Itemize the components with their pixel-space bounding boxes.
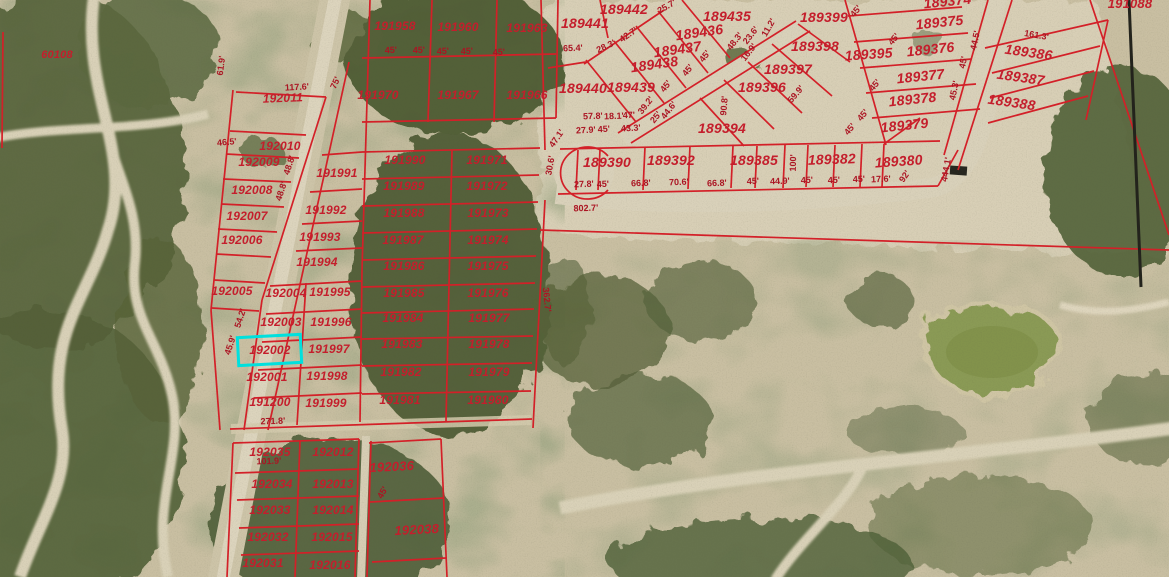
parcel-label-189380: 189380 (874, 151, 923, 170)
parcel-label-192033: 192033 (249, 503, 290, 517)
dimension-label: 802.7' (573, 203, 598, 214)
parcel-label-191967: 191967 (437, 88, 479, 102)
dimension-label: 46.5' (217, 136, 237, 148)
parcel-label-191974: 191974 (467, 233, 508, 247)
dimension-label: 117.6' (285, 81, 310, 92)
parcel-label-191958: 191958 (374, 19, 415, 33)
parcel-label-191997: 191997 (308, 342, 350, 356)
parcel-label-191200: 191200 (249, 395, 290, 409)
parcel-label-191973: 191973 (467, 206, 508, 220)
parcel-label-191970: 191970 (357, 88, 398, 102)
parcel-label-189392: 189392 (647, 152, 695, 168)
parcel-label-192002: 192002 (249, 343, 290, 357)
parcel-label-191088: 191088 (1108, 0, 1153, 11)
parcel-label-192003: 192003 (260, 315, 301, 329)
dimension-label: 101.9' (256, 456, 281, 467)
dimension-label: 271.8' (260, 416, 285, 427)
parcel-label-191992: 191992 (305, 203, 346, 217)
parcel-label-192031: 192031 (242, 556, 283, 570)
parcel-label-189394: 189394 (698, 120, 746, 136)
parcel-label-191990: 191990 (384, 153, 425, 167)
parcel-label-191991: 191991 (316, 166, 357, 180)
parcel-label-191984: 191984 (382, 311, 423, 325)
parcel-label-189399: 189399 (800, 9, 848, 25)
dimension-label: 57.8' (583, 111, 603, 122)
parcel-label-191987: 191987 (382, 233, 424, 247)
parcel-label-192036: 192036 (369, 458, 415, 475)
parcel-label-191981: 191981 (379, 393, 420, 407)
parcel-label-192034: 192034 (251, 477, 292, 491)
dimension-label: 45' (437, 46, 449, 56)
dimension-label: 100' (788, 154, 799, 171)
parcel-label-192007: 192007 (226, 209, 268, 223)
dimension-label: 90.8' (718, 96, 730, 116)
parcel-label-192010: 192010 (259, 139, 300, 153)
dimension-label: 17.6' (871, 174, 891, 185)
parcel-label-192014: 192014 (312, 503, 353, 517)
parcel-label-191979: 191979 (468, 365, 509, 379)
dimension-label: 66.8' (631, 178, 651, 189)
dimension-label: 45' (461, 46, 473, 56)
parcel-label-189440: 189440 (559, 80, 607, 96)
parcel-label-192011: 192011 (262, 90, 303, 105)
aerial-parcel-map[interactable]: 1894421894411894351894361894371894381894… (0, 0, 1169, 577)
dimension-label: 45' (747, 176, 759, 186)
parcel-label-192006: 192006 (221, 233, 262, 247)
parcel-label-189385: 189385 (730, 152, 778, 168)
dimension-label: 45' (385, 45, 397, 55)
dimension-label: 18.1' (604, 111, 624, 122)
dimension-label: 45' (801, 175, 813, 185)
parcel-label-191994: 191994 (296, 255, 337, 269)
dimension-label: 45' (853, 174, 865, 184)
parcel-label-192013: 192013 (312, 477, 353, 491)
parcel-label-191998: 191998 (306, 369, 347, 383)
parcel-label-191996: 191996 (310, 315, 351, 329)
parcel-label-191983: 191983 (381, 337, 422, 351)
dimension-label: 44.9' (770, 176, 790, 187)
parcel-label-189397: 189397 (764, 61, 813, 77)
parcel-label-189396: 189396 (738, 79, 786, 95)
parcel-label-191963: 191963 (506, 21, 547, 35)
parcel-label-191971: 191971 (466, 153, 507, 167)
parcel-label-192015: 192015 (311, 530, 352, 544)
dimension-label: 45' (597, 179, 609, 189)
dimension-label: 45' (598, 124, 611, 135)
parcel-label-191978: 191978 (468, 337, 509, 351)
parcel-label-192008: 192008 (231, 183, 272, 197)
dimension-label: 27.8' (574, 179, 594, 190)
dimension-label: 43.3' (621, 122, 641, 133)
parcel-label-191966: 191966 (506, 88, 547, 102)
parcel-label-191982: 191982 (380, 365, 421, 379)
parcel-label-191976: 191976 (467, 286, 508, 300)
parcel-label-191980: 191980 (467, 393, 508, 407)
parcel-label-191988: 191988 (383, 206, 424, 220)
parcel-label-191975: 191975 (467, 259, 508, 273)
parcel-label-189395: 189395 (844, 44, 893, 63)
dimension-label: 45' (828, 175, 840, 185)
parcel-label-189439: 189439 (607, 79, 655, 95)
parcel-label-189398: 189398 (791, 38, 839, 54)
parcel-label-192005: 192005 (211, 284, 252, 298)
parcel-label-189382: 189382 (808, 150, 856, 168)
dimension-label: 27.9' (576, 124, 596, 135)
dimension-label: 70.6' (669, 177, 689, 188)
parcel-label-191986: 191986 (383, 259, 424, 273)
parcel-label-192009: 192009 (238, 155, 279, 169)
parcel-boundary-line (2, 32, 3, 148)
dimension-label: 47' (623, 110, 635, 120)
parcel-label-191972: 191972 (466, 179, 507, 193)
parcel-label-191977: 191977 (468, 311, 510, 325)
parcel-label-189390: 189390 (583, 154, 631, 170)
dimension-label: 45' (413, 45, 425, 55)
parcel-label-192012: 192012 (312, 445, 353, 459)
parcel-label-192001: 192001 (246, 370, 287, 384)
map-viewport: 1894421894411894351894361894371894381894… (0, 0, 1169, 577)
parcel-label-189441: 189441 (561, 15, 609, 31)
parcel-label-60108: 60108 (41, 49, 73, 61)
parcel-label-192004: 192004 (265, 286, 306, 300)
dimension-label: 66.8' (707, 178, 727, 189)
parcel-label-191993: 191993 (299, 230, 340, 244)
parcel-label-192016: 192016 (309, 558, 350, 572)
parcel-label-191985: 191985 (383, 286, 424, 300)
parcel-label-191999: 191999 (305, 396, 346, 410)
dimension-label: 45' (493, 47, 505, 57)
dimension-label: 65.4' (563, 43, 583, 54)
parcel-label-191960: 191960 (437, 20, 478, 34)
parcel-label-191989: 191989 (383, 179, 424, 193)
parcel-label-192032: 192032 (247, 530, 288, 544)
parcel-label-191995: 191995 (309, 285, 350, 299)
parcel-label-192038: 192038 (394, 521, 440, 538)
